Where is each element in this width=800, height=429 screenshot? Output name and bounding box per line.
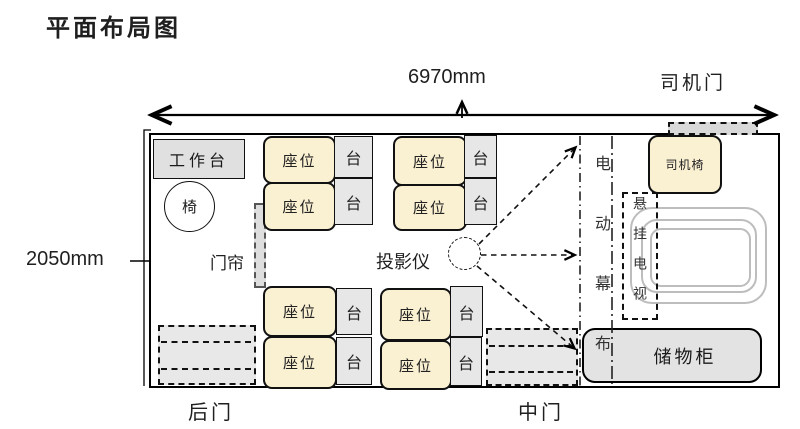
projector-circle bbox=[448, 237, 481, 270]
driver-door bbox=[668, 122, 758, 135]
seat-label: 座位 bbox=[283, 301, 317, 322]
side-table: 台 bbox=[336, 337, 372, 385]
side-table-label: 台 bbox=[458, 300, 474, 324]
rear-door bbox=[158, 325, 256, 385]
seat: 座位 bbox=[263, 336, 337, 389]
page-title: 平面布局图 bbox=[46, 8, 181, 43]
seat-label: 座位 bbox=[399, 304, 433, 325]
seat: 座位 bbox=[380, 340, 452, 390]
seat: 座位 bbox=[263, 286, 337, 337]
length-dimension-label: 6970mm bbox=[408, 66, 486, 89]
projector-label: 投影仪 bbox=[376, 248, 430, 274]
worktable-label: 工作台 bbox=[169, 147, 229, 171]
side-table: 台 bbox=[464, 135, 497, 178]
side-table-label: 台 bbox=[345, 190, 361, 214]
side-table-label: 台 bbox=[472, 145, 488, 169]
electric-screen-label: 电动幕布 bbox=[592, 155, 608, 395]
side-table: 台 bbox=[464, 178, 497, 225]
tv-ring-inner bbox=[650, 228, 751, 287]
rear-door-step-line bbox=[161, 368, 251, 370]
hanging-tv-box: 悬挂电视 bbox=[622, 192, 658, 320]
driver-seat: 司机椅 bbox=[648, 135, 722, 194]
seat-label: 座位 bbox=[399, 355, 433, 376]
chair-circle: 椅 bbox=[164, 181, 215, 232]
side-table: 台 bbox=[334, 136, 373, 178]
worktable: 工作台 bbox=[153, 139, 245, 179]
side-table: 台 bbox=[334, 178, 373, 225]
rear-door-step-line bbox=[161, 341, 251, 343]
chair-label: 椅 bbox=[182, 196, 197, 217]
middle-door-label: 中门 bbox=[518, 396, 564, 425]
seat: 座位 bbox=[393, 184, 467, 231]
seat: 座位 bbox=[393, 136, 467, 186]
side-table: 台 bbox=[450, 286, 483, 337]
side-table-label: 台 bbox=[346, 349, 362, 373]
seat-label: 座位 bbox=[282, 196, 316, 217]
door-curtain-label: 门帘 bbox=[210, 249, 244, 274]
rear-door-label: 后门 bbox=[188, 396, 234, 425]
middle-door-step-line bbox=[489, 345, 573, 347]
middle-door-step-line bbox=[489, 371, 573, 373]
seat-label: 座位 bbox=[413, 151, 447, 172]
seat: 座位 bbox=[380, 288, 452, 341]
seat: 座位 bbox=[263, 182, 336, 231]
seat-label: 座位 bbox=[282, 150, 316, 171]
side-table: 台 bbox=[450, 337, 482, 386]
seat: 座位 bbox=[263, 136, 336, 184]
hanging-tv-label: 悬挂电视 bbox=[633, 196, 647, 316]
side-table-label: 台 bbox=[346, 300, 362, 324]
side-table-label: 台 bbox=[458, 350, 474, 374]
side-table: 台 bbox=[336, 288, 372, 335]
width-dimension-label: 2050mm bbox=[26, 248, 104, 271]
floor-plan-diagram: 平面布局图 6970mm 司机门 2050mm 工作台 椅 门帘 座位 座位 台… bbox=[0, 0, 800, 429]
seat-label: 座位 bbox=[283, 352, 317, 373]
middle-door bbox=[486, 328, 578, 386]
storage-cabinet-label: 储物柜 bbox=[628, 343, 717, 369]
seat-label: 座位 bbox=[413, 197, 447, 218]
side-table-label: 台 bbox=[472, 190, 488, 214]
driver-door-label: 司机门 bbox=[660, 68, 726, 95]
storage-cabinet: 储物柜 bbox=[582, 328, 762, 383]
side-table-label: 台 bbox=[345, 145, 361, 169]
driver-seat-label: 司机椅 bbox=[665, 156, 704, 173]
